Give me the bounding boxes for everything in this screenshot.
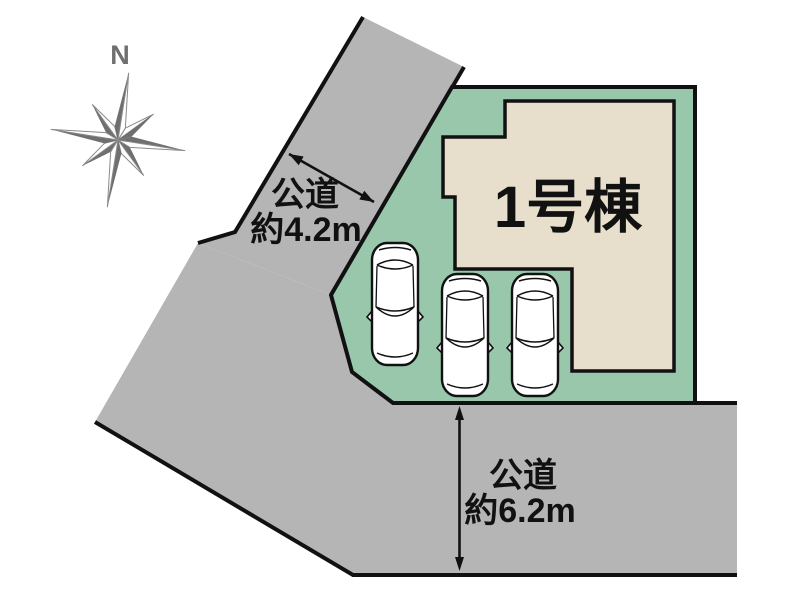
car-icon xyxy=(367,243,423,365)
road-south-width: 約6.2m xyxy=(464,492,576,530)
compass-north-label: N xyxy=(110,40,130,70)
road-south-name: 公道 xyxy=(489,457,557,495)
car-icon xyxy=(437,274,493,396)
car-icon xyxy=(507,274,563,396)
site-plan-canvas: 1号棟 公道 約4.2m 公道 約6.2m N xyxy=(0,0,800,600)
building-label: 1号棟 xyxy=(494,175,643,240)
plot-layout-diagram: 1号棟 公道 約4.2m 公道 約6.2m N xyxy=(0,0,800,600)
road-west-name: 公道 xyxy=(271,176,339,214)
road-west-width: 約4.2m xyxy=(250,211,362,249)
